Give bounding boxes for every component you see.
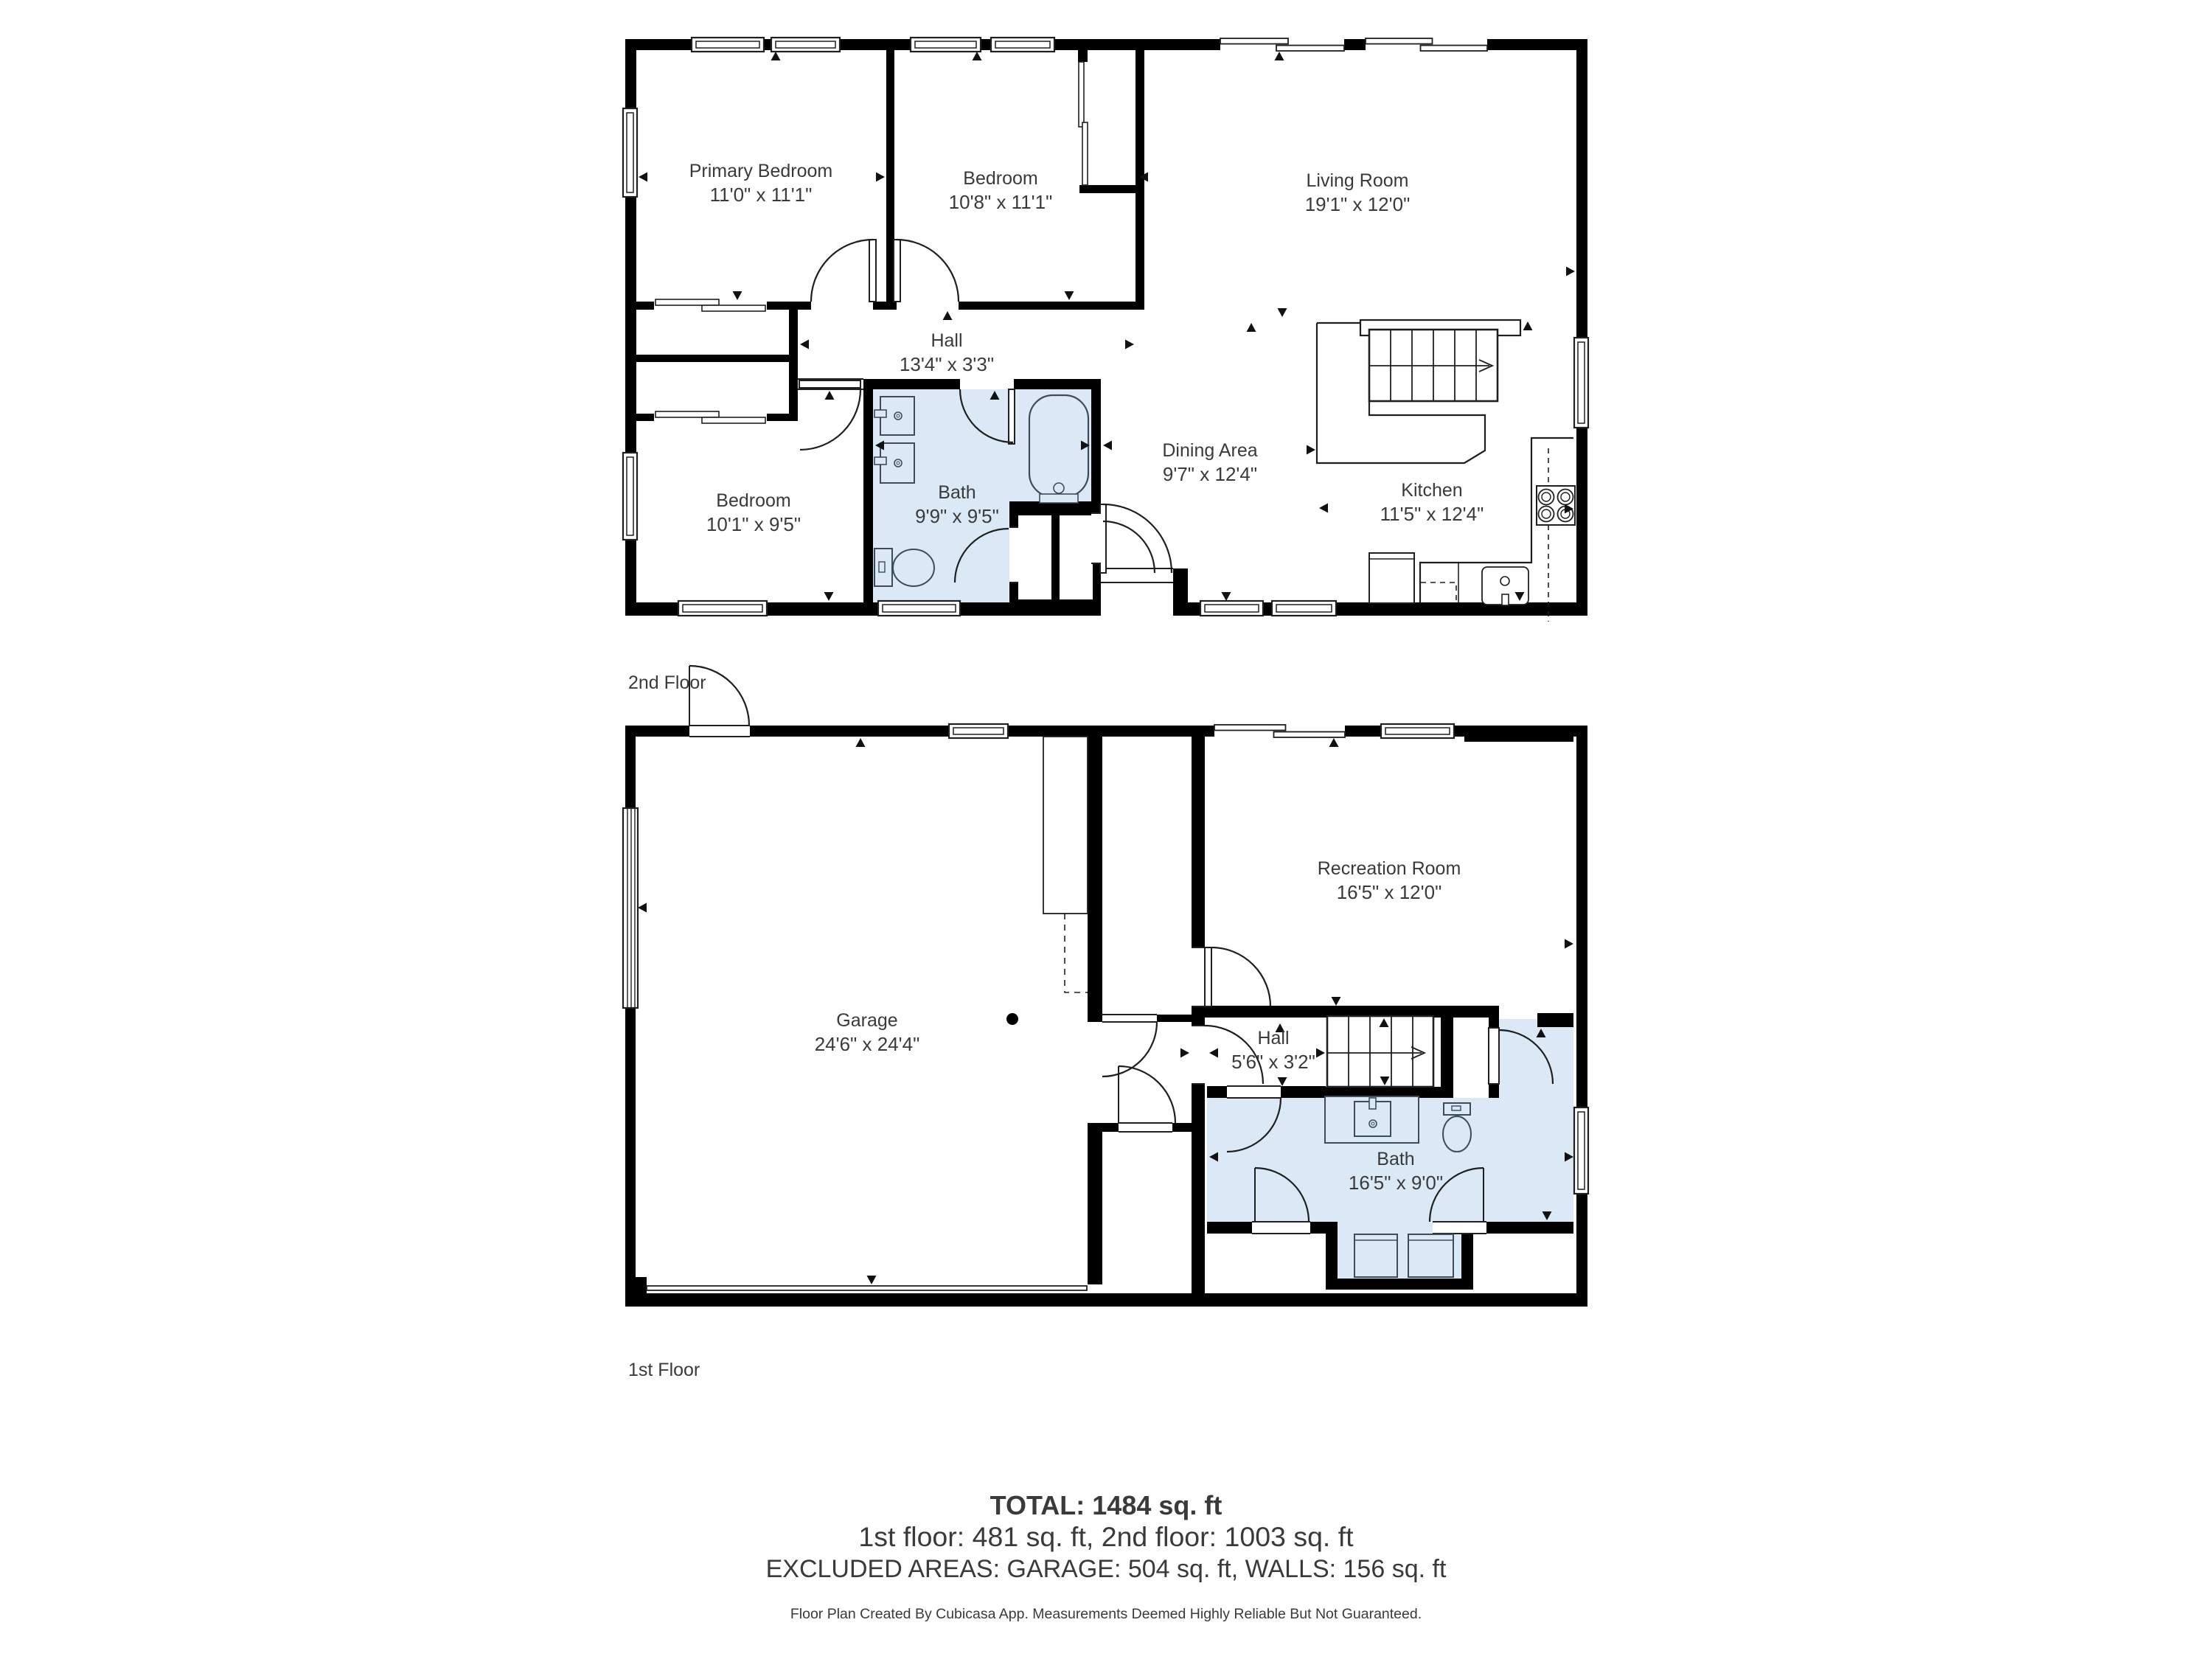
svg-text:16'5" x 9'0": 16'5" x 9'0"	[1349, 1172, 1443, 1194]
svg-text:Bath: Bath	[938, 482, 975, 503]
svg-text:TOTAL: 1484 sq. ft: TOTAL: 1484 sq. ft	[990, 1490, 1222, 1520]
svg-text:Hall: Hall	[1257, 1028, 1289, 1048]
svg-text:11'5" x 12'4": 11'5" x 12'4"	[1380, 503, 1484, 525]
svg-text:9'7" x 12'4": 9'7" x 12'4"	[1163, 463, 1257, 485]
svg-text:Bedroom: Bedroom	[716, 490, 790, 511]
svg-text:13'4" x 3'3": 13'4" x 3'3"	[900, 353, 994, 375]
svg-text:1st Floor: 1st Floor	[628, 1360, 700, 1380]
svg-text:2nd Floor: 2nd Floor	[628, 672, 706, 693]
svg-text:Living Room: Living Room	[1307, 170, 1409, 191]
svg-text:9'9" x 9'5": 9'9" x 9'5"	[915, 505, 999, 527]
svg-text:EXCLUDED AREAS: GARAGE: 504 sq: EXCLUDED AREAS: GARAGE: 504 sq. ft, WALL…	[766, 1555, 1447, 1583]
svg-text:24'6" x 24'4": 24'6" x 24'4"	[815, 1033, 920, 1055]
svg-text:Primary Bedroom: Primary Bedroom	[689, 161, 833, 181]
svg-text:Floor Plan Created By Cubicasa: Floor Plan Created By Cubicasa App. Meas…	[790, 1606, 1422, 1622]
svg-text:10'1" x 9'5": 10'1" x 9'5"	[706, 513, 801, 535]
svg-text:16'5" x 12'0": 16'5" x 12'0"	[1337, 881, 1442, 903]
svg-text:Bath: Bath	[1377, 1149, 1414, 1169]
svg-text:Dining Area: Dining Area	[1162, 440, 1257, 461]
svg-text:Garage: Garage	[836, 1010, 897, 1031]
svg-text:Bedroom: Bedroom	[963, 168, 1037, 189]
svg-text:Recreation Room: Recreation Room	[1318, 858, 1461, 879]
svg-text:5'6" x 3'2": 5'6" x 3'2"	[1231, 1051, 1315, 1073]
svg-text:11'0" x 11'1": 11'0" x 11'1"	[710, 184, 813, 206]
svg-text:Hall: Hall	[931, 330, 962, 351]
svg-text:1st floor: 481 sq. ft, 2nd flo: 1st floor: 481 sq. ft, 2nd floor: 1003 s…	[858, 1521, 1354, 1552]
svg-text:Kitchen: Kitchen	[1401, 480, 1462, 501]
svg-text:19'1" x 12'0": 19'1" x 12'0"	[1305, 193, 1411, 215]
svg-text:10'8" x 11'1": 10'8" x 11'1"	[949, 191, 1053, 213]
